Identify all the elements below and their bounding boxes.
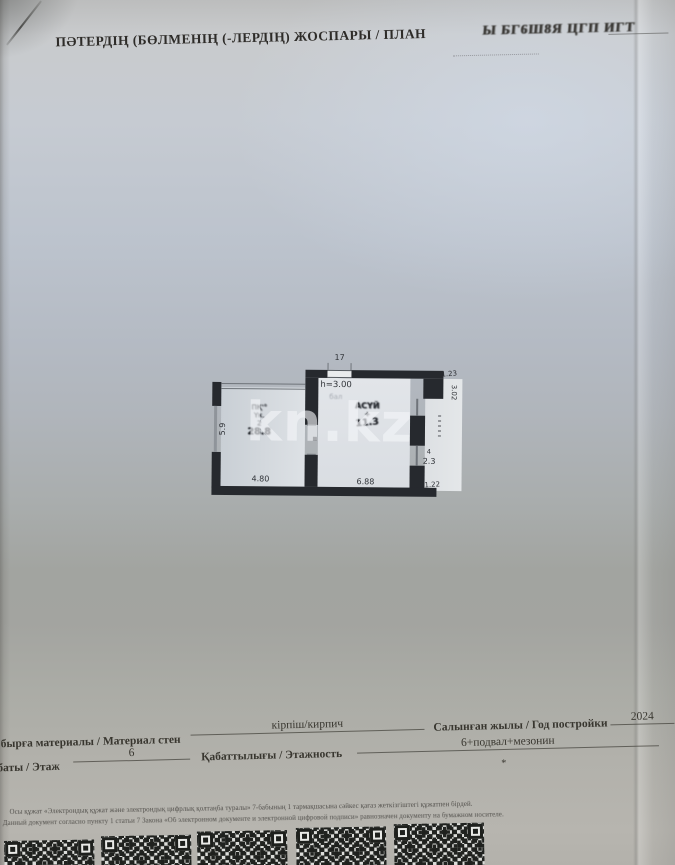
header-dotted-line xyxy=(453,53,539,56)
qr-code xyxy=(4,839,95,865)
wall-material-value: кірпіш/кирпич xyxy=(190,716,424,736)
opening-right-lower xyxy=(416,446,418,466)
qr-code xyxy=(101,835,192,865)
document-title-garbled: Ы БГ6Ш8Я ЦГП ИГТ xyxy=(482,19,636,38)
qr-finder-icon xyxy=(175,836,190,851)
qr-code xyxy=(197,830,288,865)
floor-plan: 17 h=3.00 бал 5.9 4.80 6.88 1.23 3.02 4 … xyxy=(209,351,462,505)
dim-right-mid: 2.3 xyxy=(423,458,436,466)
wall-left-top xyxy=(212,382,221,406)
document-header: ПӘТЕРДІҢ (БӨЛМЕНІҢ (-ЛЕРДІҢ) ЖОСПАРЫ / П… xyxy=(0,10,675,25)
scanned-floor-plan-document: ПӘТЕРДІҢ (БӨЛМЕНІҢ (-ЛЕРДІҢ) ЖОСПАРЫ / П… xyxy=(0,0,675,865)
footnote-asterisk: * xyxy=(501,758,506,769)
ceiling-height-label: h=3.00 xyxy=(320,381,352,390)
qr-code xyxy=(394,823,485,865)
building-info: бырға материалы / Материал стен кірпіш/к… xyxy=(0,710,675,793)
qr-finder-icon xyxy=(78,840,93,855)
build-year-value: 2024 xyxy=(610,710,674,726)
qr-code xyxy=(296,826,387,865)
wall-partition-bottom xyxy=(304,455,317,487)
dim-right-small: 4 xyxy=(427,449,431,456)
dim-left-vertical: 5.9 xyxy=(219,414,227,444)
dim-right-bottom: 1.22 xyxy=(424,481,440,489)
window-top xyxy=(327,370,351,378)
qr-finder-icon xyxy=(198,832,213,847)
window-left-wall xyxy=(214,406,217,452)
document-footer: Осы құжат «Электрондық құжат және электр… xyxy=(0,789,675,865)
wall-top xyxy=(305,370,443,379)
corner-shadow xyxy=(0,0,80,60)
qr-finder-icon xyxy=(395,825,410,840)
build-year-label: Салынған жылы / Год постройки xyxy=(433,717,607,733)
dimension-tick-right xyxy=(351,363,352,370)
dim-bottom-right: 6.88 xyxy=(356,478,374,486)
document-title: ПӘТЕРДІҢ (БӨЛМЕНІҢ (-ЛЕРДІҢ) ЖОСПАРЫ / П… xyxy=(55,26,426,50)
qr-finder-icon xyxy=(102,837,117,852)
qr-finder-icon xyxy=(5,842,20,857)
qr-finder-icon xyxy=(370,827,385,842)
qr-finder-icon xyxy=(271,831,286,846)
storeys-value: 6+подвал+мезонин xyxy=(357,732,659,753)
header-underline xyxy=(608,32,668,34)
qr-finder-icon xyxy=(297,829,312,844)
wall-bottom xyxy=(211,486,436,497)
wall-left-bottom xyxy=(211,452,220,488)
door-jamb-bottom xyxy=(307,454,316,455)
dimension-tick-left xyxy=(328,363,329,370)
thin-wall-left-room-top xyxy=(221,383,305,390)
dim-bottom-left: 4.80 xyxy=(252,475,270,483)
storeys-label: Қабаттылығы / Этажность xyxy=(201,748,342,763)
floor-value: 6 xyxy=(73,746,190,763)
dim-right-vertical: 3.02 xyxy=(450,377,457,407)
faint-marks xyxy=(438,415,441,437)
window-right-upper xyxy=(416,399,418,416)
qr-finder-icon xyxy=(468,824,483,839)
kn-kz-watermark: kn.kz xyxy=(246,395,414,450)
floor-label: баты / Этаж xyxy=(0,761,60,775)
dim-top-opening: 17 xyxy=(325,354,355,362)
wall-top-right-block xyxy=(423,379,443,399)
